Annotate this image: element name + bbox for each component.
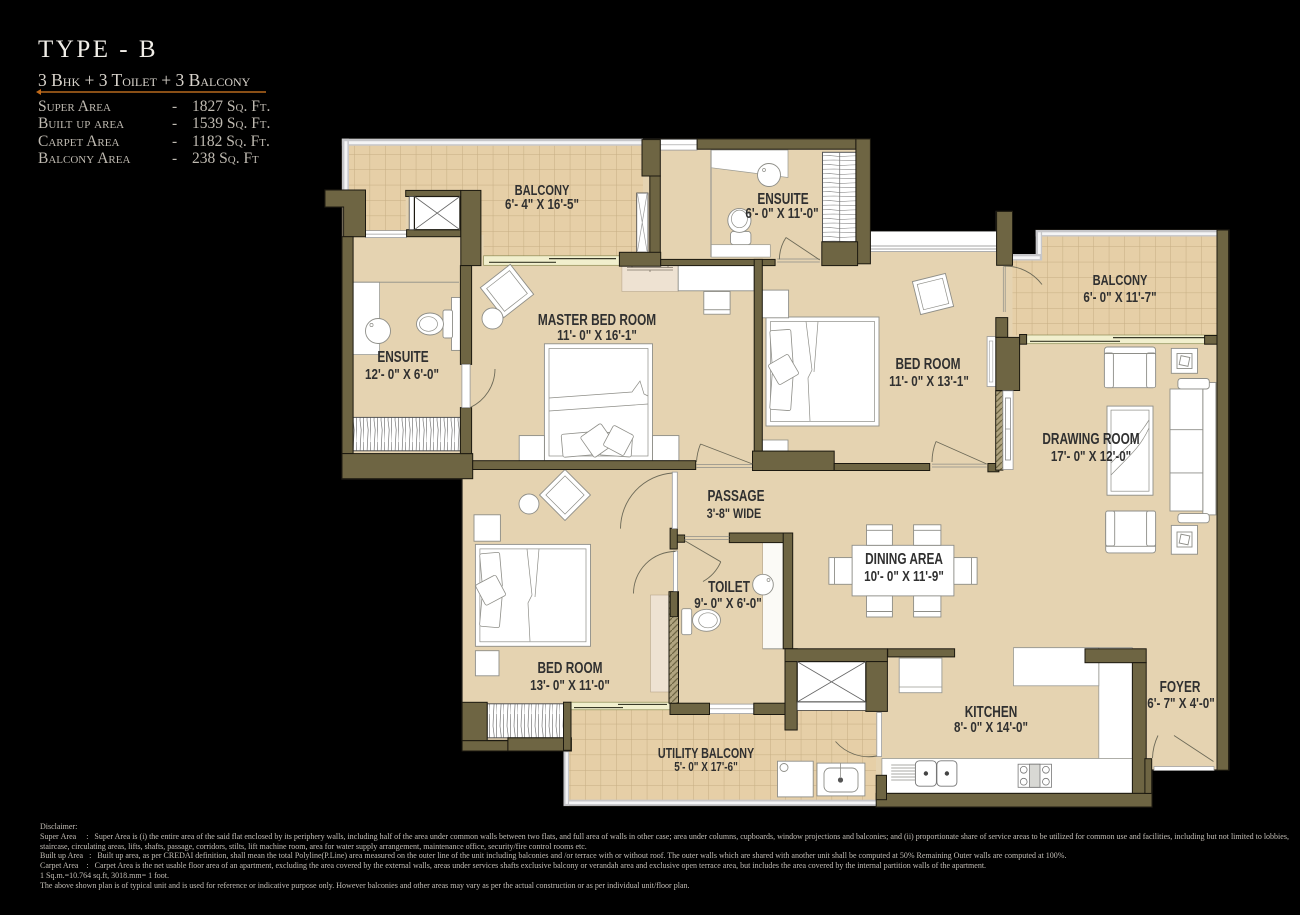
svg-text:3'-8" WIDE: 3'-8" WIDE [707,506,761,521]
svg-text:5'- 0" X 17'-6": 5'- 0" X 17'-6" [674,761,738,774]
svg-text:6'- 4" X 16'-5": 6'- 4" X 16'-5" [505,196,579,213]
svg-text:BALCONY: BALCONY [1093,271,1148,288]
svg-text:ENSUITE: ENSUITE [377,347,428,365]
svg-text:DINING AREA: DINING AREA [865,549,943,567]
svg-text:10'- 0" X 11'-9": 10'- 0" X 11'-9" [864,568,944,585]
svg-text:FOYER: FOYER [1160,677,1201,695]
svg-text:11'- 0" X 13'-1": 11'- 0" X 13'-1" [889,373,969,390]
svg-text:12'- 0" X 6'-0": 12'- 0" X 6'-0" [365,366,439,383]
svg-text:9'- 0" X 6'-0": 9'- 0" X 6'-0" [694,595,761,612]
svg-text:UTILITY BALCONY: UTILITY BALCONY [658,744,755,761]
svg-text:MASTER BED ROOM: MASTER BED ROOM [538,310,656,328]
svg-text:PASSAGE: PASSAGE [708,486,765,504]
svg-text:DRAWING ROOM: DRAWING ROOM [1042,429,1139,447]
svg-text:6'- 7" X 4'-0": 6'- 7" X 4'-0" [1147,695,1214,712]
svg-text:KITCHEN: KITCHEN [965,702,1018,720]
svg-text:TOILET: TOILET [708,577,750,595]
svg-text:BED ROOM: BED ROOM [895,354,960,372]
svg-text:13'- 0" X 11'-0": 13'- 0" X 11'-0" [530,677,610,694]
svg-text:6'- 0" X 11'-0": 6'- 0" X 11'-0" [745,205,818,222]
svg-text:17'- 0" X 12'-0": 17'- 0" X 12'-0" [1051,448,1131,465]
svg-text:BED ROOM: BED ROOM [537,658,602,676]
svg-text:8'- 0" X 14'-0": 8'- 0" X 14'-0" [954,719,1028,736]
svg-text:6'- 0" X 11'-7": 6'- 0" X 11'-7" [1083,289,1156,306]
svg-text:11'- 0" X 16'-1": 11'- 0" X 16'-1" [557,327,637,344]
